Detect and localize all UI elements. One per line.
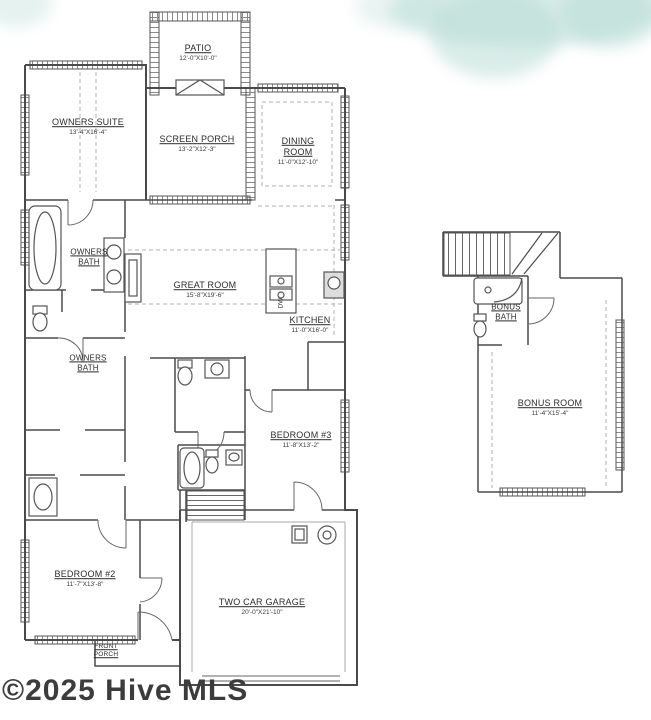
room-label-great-room: GREAT ROOM 15'-8"X19'-6" [174, 280, 237, 300]
room-label-bonus-bath: BONUS BATH [484, 302, 528, 321]
room-label-screen-porch: SCREEN PORCH 13'-2"X12'-3" [160, 134, 235, 154]
toilet-fixture [33, 306, 47, 331]
laundry-sink-fixture [29, 478, 57, 516]
room-label-kitchen: KITCHEN 11'-0"X16'-0" [290, 315, 331, 335]
range-fixture [324, 272, 344, 298]
patio-steps [176, 80, 224, 95]
room-label-bonus-room: BONUS ROOM 11'-4"X15'-4" [518, 398, 583, 418]
room-label-owners-suite: OWNERS SUITE 13'-4"X16'-4" [52, 117, 124, 137]
fireplace-fixture [125, 254, 141, 302]
room-label-dining-room: DINING ROOM 11'-0"X12'-10" [270, 136, 326, 166]
bonus-shower-fixture [474, 278, 522, 304]
stairs-main [187, 491, 244, 520]
floor-plan-image: PATIO 12'-0"X10'-0" OWNERS SUITE 13'-4"X… [0, 0, 651, 720]
hall-bath-fixtures [178, 360, 229, 385]
water-heater-fixture [292, 526, 336, 544]
room-label-bedroom-3: BEDROOM #3 11'-8"X13'-2" [270, 430, 331, 450]
room-label-front-porch: FRONT PORCH [89, 643, 123, 659]
room-label-owners-bath-lower: OWNERS BATH [64, 353, 112, 372]
room-label-patio: PATIO 12'-0"X10'-0" [179, 43, 216, 63]
stairs-bonus [444, 233, 510, 275]
bath2-fixtures [180, 448, 242, 488]
mls-watermark: ©2025 Hive MLS [2, 674, 248, 708]
room-label-garage: TWO CAR GARAGE 20'-0"X21'-10" [219, 597, 305, 617]
dishwasher-label: DW [278, 298, 285, 309]
room-label-owners-bath-upper: OWNERS BATH [65, 247, 113, 266]
room-label-bedroom-2: BEDROOM #2 11'-7"X13'-8" [54, 569, 115, 589]
bathtub-fixture [29, 206, 61, 290]
